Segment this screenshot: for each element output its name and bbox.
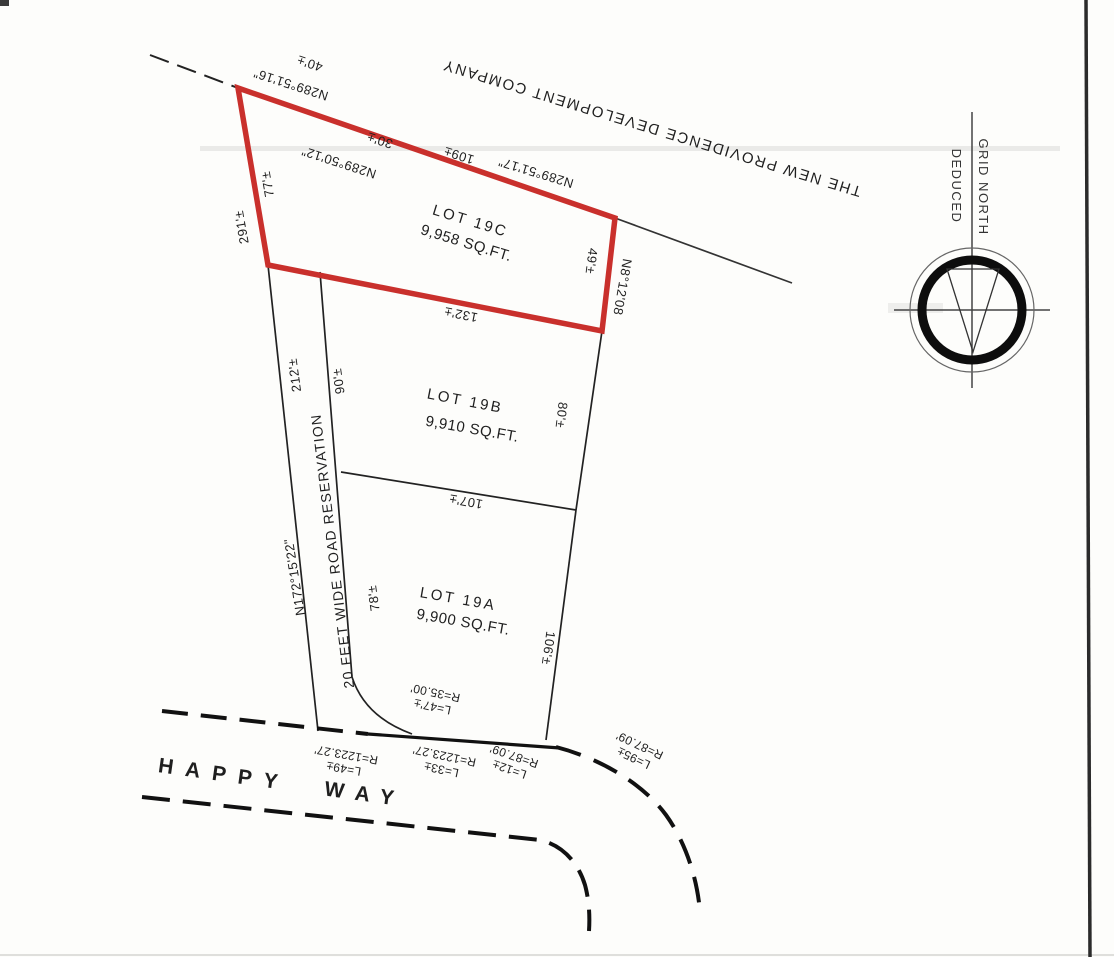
survey-plat-page: THE NEW PROVIDENCE DEVELOPMENT COMPANY N… bbox=[0, 0, 1114, 957]
dimension-label-80: 80'± bbox=[552, 401, 569, 429]
road-edge-frontage-solid bbox=[368, 734, 560, 748]
road-edge-upper-dashed bbox=[162, 711, 368, 734]
boundary-line-ne bbox=[615, 218, 792, 283]
scan-page-edge bbox=[1086, 0, 1090, 957]
dimension-label-49: 49'± bbox=[582, 247, 599, 275]
plat-linework bbox=[0, 0, 1114, 957]
deduced-label: DEDUCED bbox=[949, 149, 963, 224]
compass-rose bbox=[894, 112, 1050, 388]
road-reservation-left-line bbox=[268, 265, 318, 731]
lot19b-east-line bbox=[576, 331, 602, 510]
lot19a-east-line bbox=[546, 510, 576, 740]
scan-corner-mark bbox=[0, 0, 9, 6]
scan-streak bbox=[888, 303, 943, 313]
road-edge-outer-curve-dashed bbox=[556, 747, 700, 912]
boundary-dashed-nw bbox=[150, 55, 238, 88]
grid-north-label: GRID NORTH bbox=[976, 138, 990, 235]
lot19c-highlight-outline bbox=[238, 88, 615, 331]
road-edge-lower-dashed bbox=[142, 797, 589, 931]
